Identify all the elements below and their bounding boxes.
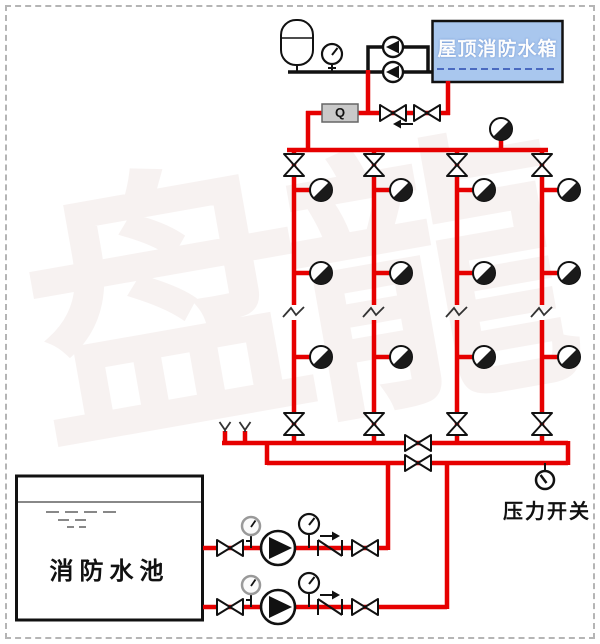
sprinkler-branch-stubs — [294, 190, 558, 357]
gate-valve-icon — [405, 435, 431, 451]
sprinkler-icon — [310, 262, 332, 284]
sprinkler-icon — [558, 346, 580, 368]
upper-header-pipe — [287, 139, 548, 150]
gate-valve-icon — [352, 540, 378, 556]
sprinkler-icon — [310, 346, 332, 368]
expansion-tank-icon — [281, 20, 313, 65]
test-vent-icon — [240, 422, 251, 432]
roof-tank-label: 屋顶消防水箱 — [434, 27, 561, 67]
sprinkler-icon — [390, 179, 412, 201]
gate-valve-icon — [414, 105, 440, 121]
signal-valve-icon — [364, 154, 384, 176]
flow-direction-arrow — [320, 591, 340, 600]
sprinkler-icon — [473, 179, 495, 201]
gate-valve-icon — [284, 413, 304, 435]
gate-valve-icon — [532, 413, 552, 435]
stabilizer-pump-icon — [383, 37, 403, 57]
gate-valve-icon — [217, 540, 243, 556]
fire-piping-schematic — [0, 0, 600, 644]
pressure-gauge-icon — [299, 514, 319, 534]
gate-valve-icon — [447, 413, 467, 435]
pressure-switch-icon — [536, 471, 554, 489]
vacuum-gauge-icon — [242, 517, 260, 535]
fire-pool-label: 消防水池 — [17, 551, 202, 586]
gate-valve-icon — [352, 599, 378, 615]
gate-valve-icon — [217, 599, 243, 615]
diagram-frame: 盘 龍 — [0, 0, 600, 644]
flow-direction-arrow — [320, 532, 340, 541]
vacuum-gauge-icon — [242, 576, 260, 594]
gate-valve-icon — [364, 413, 384, 435]
pressure-gauge-icon — [322, 44, 342, 64]
gate-valve-icon — [405, 455, 431, 471]
pipe-break-icon — [446, 307, 467, 317]
pressure-gauge-icon — [299, 573, 319, 593]
fire-pool-group — [17, 476, 203, 620]
sprinkler-icon — [390, 346, 412, 368]
sprinkler-icon — [473, 346, 495, 368]
fire-pump-icon — [261, 531, 295, 565]
stabilizer-pump-group — [281, 20, 432, 82]
sprinkler-icon — [390, 262, 412, 284]
test-vent-icon — [220, 422, 231, 432]
sprinkler-icon — [558, 179, 580, 201]
signal-valve-icon — [447, 154, 467, 176]
sprinkler-icon — [558, 262, 580, 284]
signal-valve-icon — [532, 154, 552, 176]
sprinkler-icon — [310, 179, 332, 201]
fire-pump-icon — [261, 590, 295, 624]
pipe-break-icon — [531, 307, 552, 317]
flow-meter-label: Q — [322, 104, 358, 122]
gate-valve-icon — [380, 105, 406, 121]
fire-pool-box — [17, 476, 203, 620]
signal-valve-icon — [284, 154, 304, 176]
stabilizer-pump-icon — [383, 62, 403, 82]
pressure-switch-label: 压力开关 — [488, 495, 600, 524]
flow-direction-arrow — [393, 120, 413, 129]
fire-pump-line-1 — [203, 514, 388, 565]
fire-pump-line-2 — [203, 573, 447, 624]
air-vent-icon — [490, 118, 512, 140]
sprinkler-icon — [473, 262, 495, 284]
pipe-break-icon — [283, 307, 304, 317]
riser-grid-group — [283, 118, 580, 445]
pipe-break-icon — [363, 307, 384, 317]
